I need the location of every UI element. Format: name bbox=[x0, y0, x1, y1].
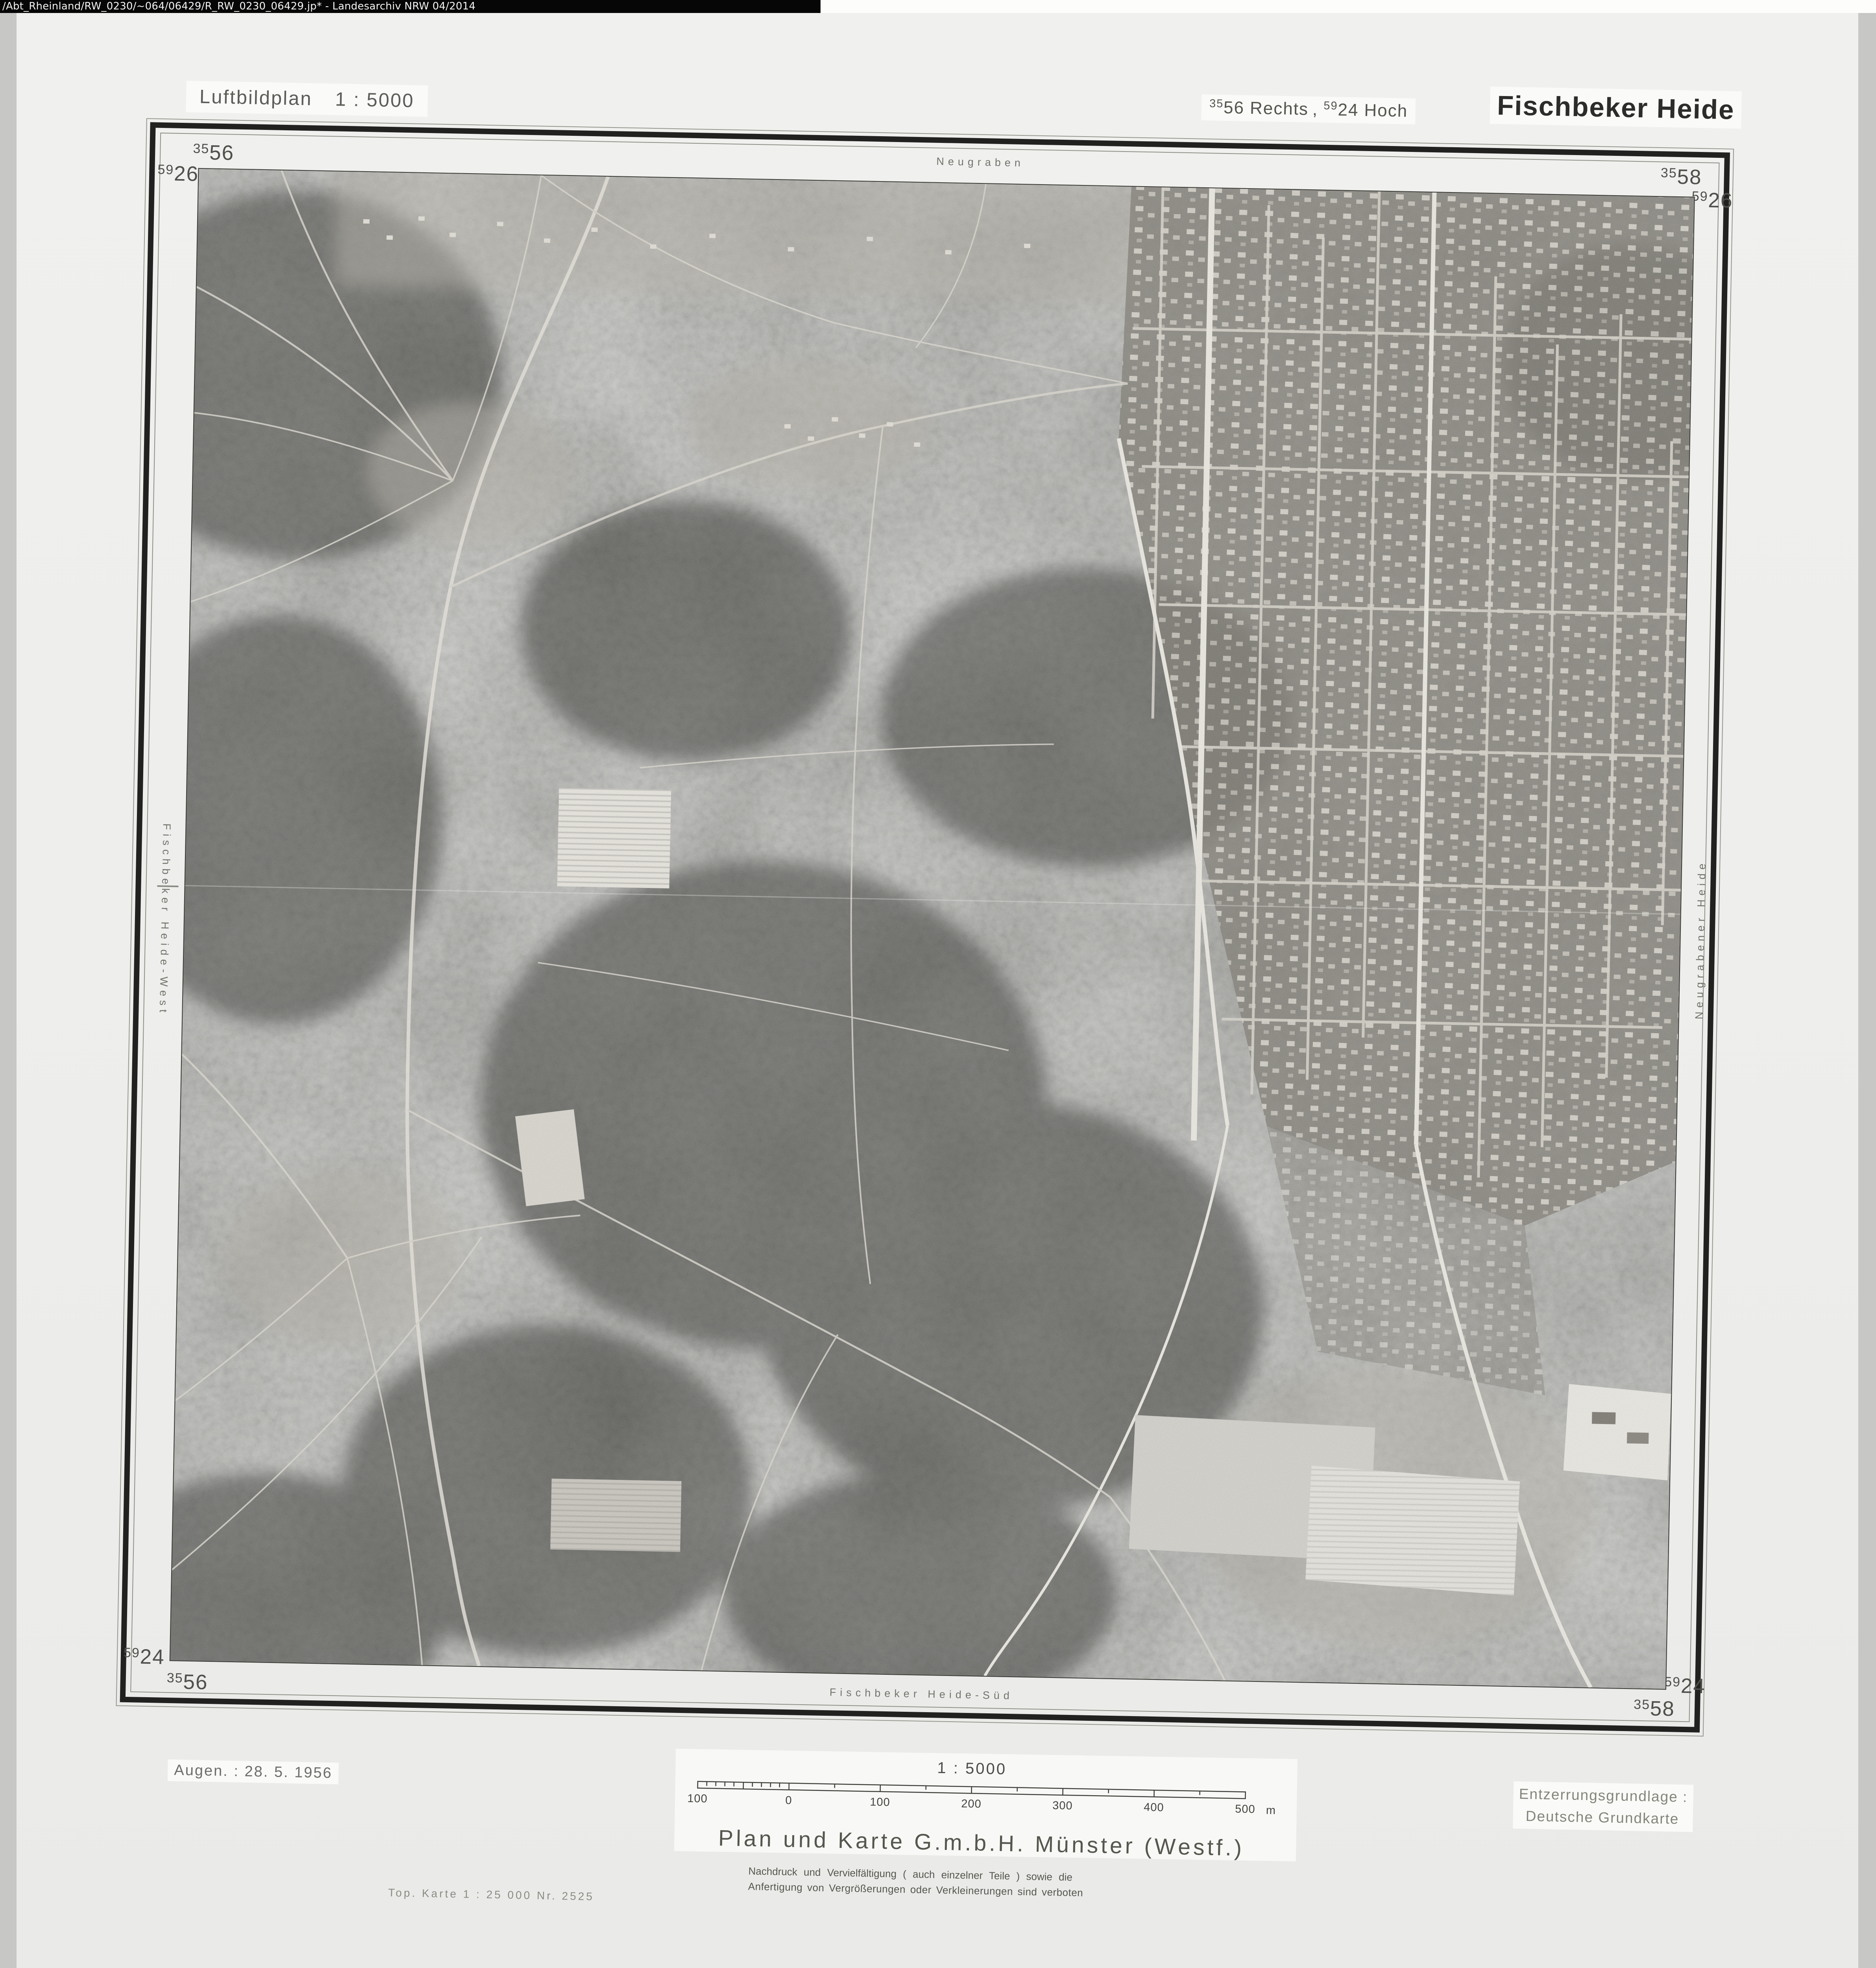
grid-sup: 59 bbox=[124, 1645, 140, 1661]
base-map-note: Top. Karte 1 : 25 000 Nr. 2525 bbox=[388, 1887, 594, 1903]
map-sheet-paper: Luftbildplan1 : 5000 3556Rechts,5924Hoch… bbox=[17, 13, 1858, 1968]
archive-filename-bar: /Abt_Rheinland/RW_0230/~064/06429/R_RW_0… bbox=[0, 0, 821, 13]
grid-label-bottom-right-hoch: 5924 bbox=[1664, 1674, 1706, 1698]
grid-sup: 35 bbox=[1634, 1697, 1651, 1713]
spacer bbox=[312, 105, 335, 105]
grid-sup: 59 bbox=[157, 162, 174, 178]
grid-rechts-word: Rechts bbox=[1250, 98, 1309, 119]
grid-hoch-main: 24 bbox=[1338, 100, 1359, 120]
sheet-title: Fischbeker Heide bbox=[1490, 87, 1742, 129]
map-sheet-content: Luftbildplan1 : 5000 3556Rechts,5924Hoch… bbox=[17, 13, 1858, 1968]
grid-reference: 3556Rechts,5924Hoch bbox=[1201, 94, 1416, 124]
scale-tick-label: 200 bbox=[954, 1797, 989, 1811]
scale-tick-label: 0 bbox=[771, 1794, 807, 1807]
grid-sup: 35 bbox=[193, 141, 210, 157]
scale-tick-label: 100 bbox=[680, 1792, 715, 1806]
grid-sup: 35 bbox=[1661, 165, 1678, 181]
plan-type-label: Luftbildplan1 : 5000 bbox=[186, 81, 428, 117]
grid-rechts-sup: 35 bbox=[1209, 97, 1224, 110]
scale-tick-label: 100 bbox=[862, 1796, 898, 1809]
scale-tick-label: 500 bbox=[1227, 1803, 1263, 1816]
grid-label-top-left-hoch: 5926 bbox=[157, 161, 199, 186]
grid-label-top-right-hoch: 5926 bbox=[1691, 188, 1733, 213]
grid-main: 56 bbox=[183, 1670, 208, 1694]
rectification-label: Entzerrungsgrundlage : bbox=[1519, 1783, 1688, 1808]
grid-main: 24 bbox=[1680, 1674, 1706, 1698]
grid-label-top-right-rechts: 3558 bbox=[1660, 165, 1702, 189]
grid-label-top-left-rechts: 3556 bbox=[193, 141, 235, 165]
grid-main: 56 bbox=[209, 141, 235, 165]
grid-sup: 59 bbox=[1664, 1674, 1681, 1690]
aerial-photo-image bbox=[170, 169, 1694, 1689]
plan-type-text: Luftbildplan bbox=[199, 86, 312, 109]
grid-sup: 35 bbox=[166, 1670, 183, 1686]
rectification-note: Entzerrungsgrundlage : Deutsche Grundkar… bbox=[1513, 1781, 1693, 1832]
grid-main: 26 bbox=[174, 162, 199, 186]
grid-sup: 59 bbox=[1691, 189, 1708, 204]
aerial-photo bbox=[170, 169, 1694, 1689]
grid-label-bottom-left-rechts: 3556 bbox=[166, 1670, 208, 1694]
grid-hoch-word: Hoch bbox=[1364, 101, 1408, 121]
scale-title: 1 : 5000 bbox=[913, 1759, 1031, 1779]
scale-unit-label: m bbox=[1266, 1804, 1276, 1817]
grid-label-bottom-right-rechts: 3558 bbox=[1633, 1696, 1675, 1721]
grid-hoch-sup: 59 bbox=[1323, 100, 1338, 113]
grid-rechts-main: 56 bbox=[1224, 98, 1245, 118]
grid-separator: , bbox=[1312, 100, 1318, 119]
rectification-value: Deutsche Grundkarte bbox=[1525, 1805, 1687, 1830]
plan-scale-text: 1 : 5000 bbox=[335, 89, 414, 111]
grid-main: 58 bbox=[1650, 1697, 1675, 1720]
grid-main: 24 bbox=[140, 1645, 165, 1669]
grid-main: 58 bbox=[1677, 165, 1702, 189]
scale-tick-label: 300 bbox=[1045, 1799, 1081, 1813]
grid-main: 26 bbox=[1708, 189, 1733, 212]
archive-filename-text: /Abt_Rheinland/RW_0230/~064/06429/R_RW_0… bbox=[2, 0, 475, 12]
grid-label-bottom-left-hoch: 5924 bbox=[123, 1644, 165, 1669]
survey-date-label: Augen. : 28. 5. 1956 bbox=[168, 1759, 339, 1784]
scale-tick-label: 400 bbox=[1136, 1801, 1172, 1814]
copyright-notice: Nachdruck und Vervielfältigung ( auch ei… bbox=[748, 1863, 1084, 1900]
